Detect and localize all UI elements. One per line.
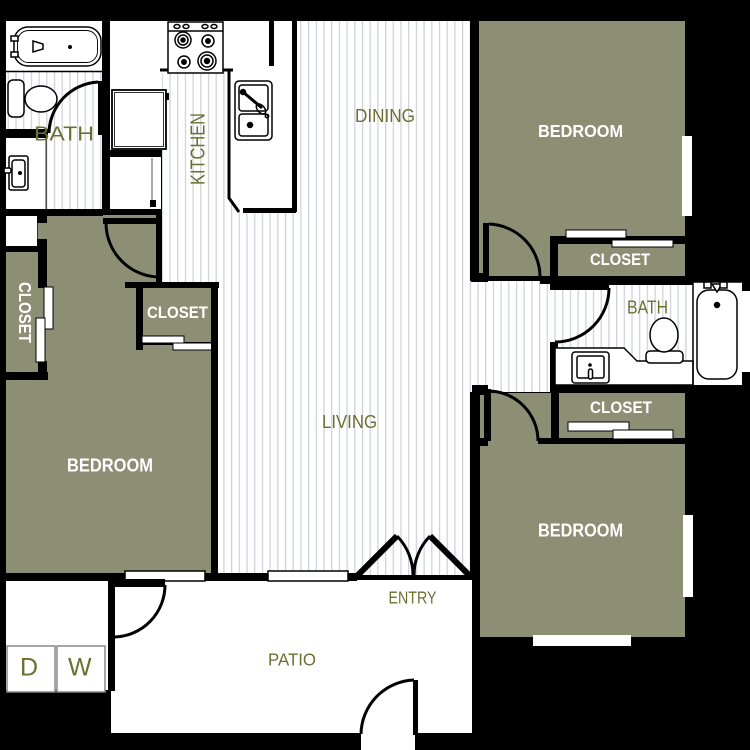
svg-text:KITCHEN: KITCHEN: [188, 113, 210, 185]
svg-text:CLOSET: CLOSET: [590, 250, 651, 269]
svg-text:CLOSET: CLOSET: [147, 303, 209, 322]
svg-text:ENTRY: ENTRY: [389, 588, 437, 608]
svg-text:W: W: [68, 654, 92, 682]
svg-text:CLOSET: CLOSET: [15, 282, 35, 343]
svg-text:BEDROOM: BEDROOM: [538, 521, 623, 541]
svg-text:CLOSET: CLOSET: [590, 398, 653, 417]
svg-text:PATIO: PATIO: [268, 650, 316, 670]
svg-text:BEDROOM: BEDROOM: [538, 121, 623, 141]
svg-text:LIVING: LIVING: [322, 412, 377, 432]
svg-text:D: D: [20, 654, 38, 682]
svg-text:BATH: BATH: [627, 298, 668, 318]
svg-text:BATH: BATH: [34, 124, 94, 146]
svg-text:BEDROOM: BEDROOM: [67, 456, 153, 476]
svg-text:DINING: DINING: [355, 105, 415, 126]
